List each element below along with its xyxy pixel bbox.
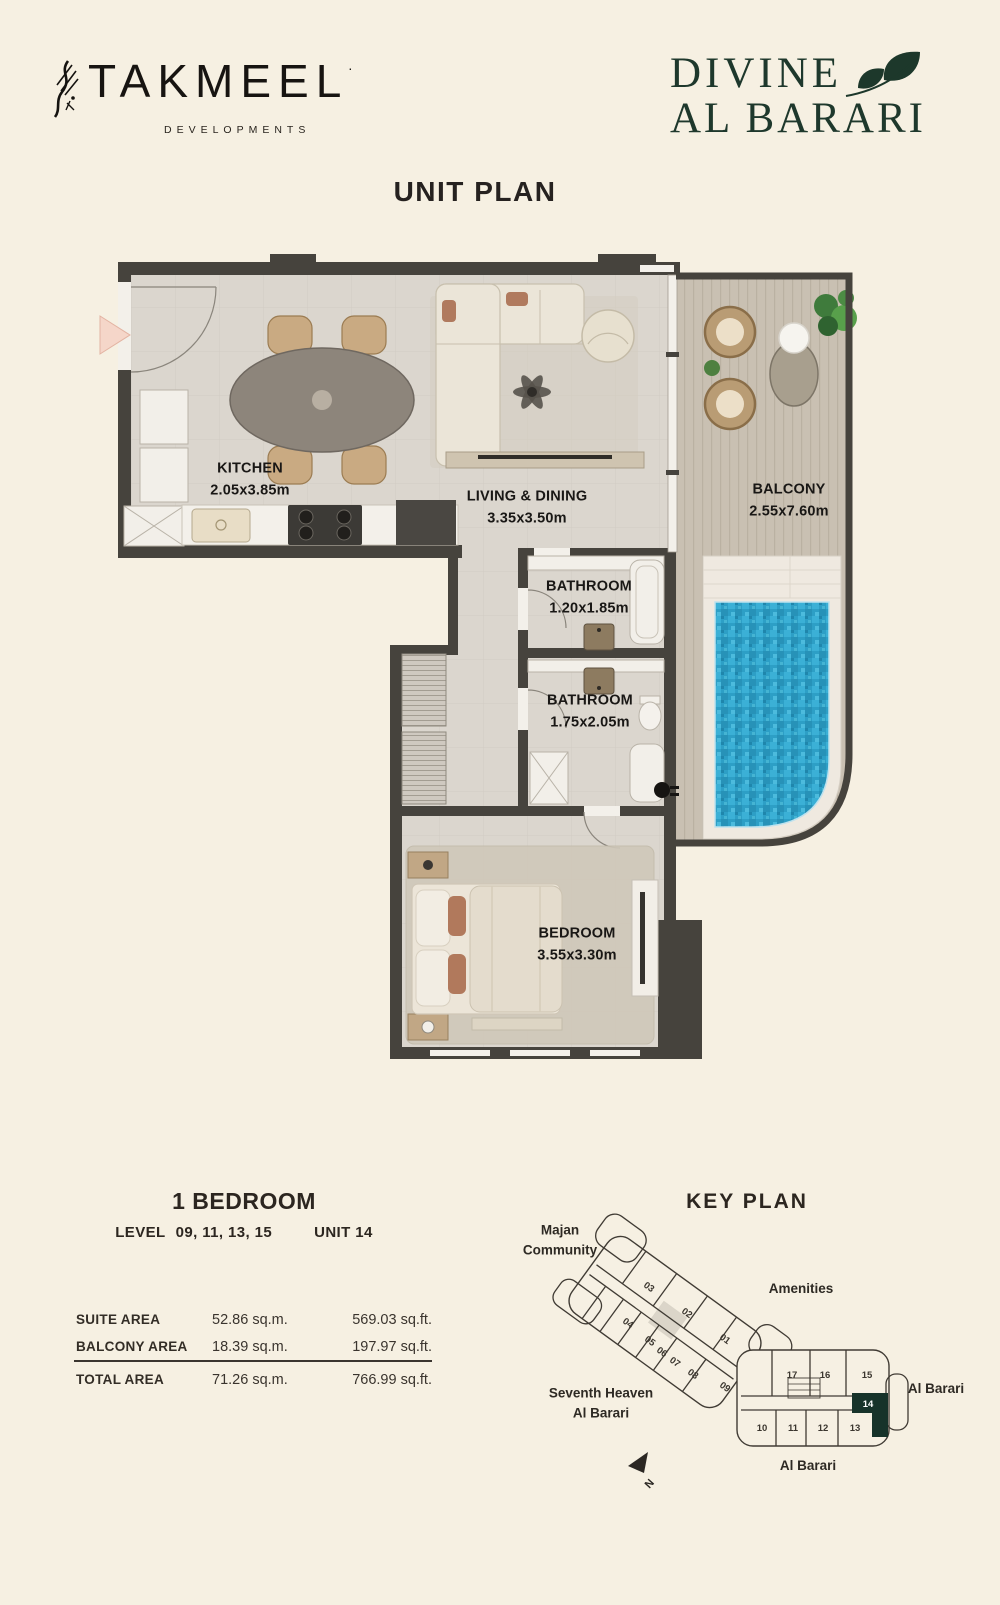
small-plant: [704, 360, 720, 376]
svg-text:17: 17: [787, 1370, 798, 1381]
pillow: [416, 890, 450, 946]
area-sqm: 18.39 sq.m.: [212, 1339, 330, 1355]
pillow: [416, 950, 450, 1006]
room-label-balcony: BALCONY 2.55x7.60m: [749, 479, 828, 523]
key-plan-graphics: N 03 02 01 04 05 06 07 08 09 17 16 15 10…: [547, 1209, 908, 1491]
room-label-living-dining: LIVING & DINING 3.35x3.50m: [467, 486, 588, 530]
area-sqm: 71.26 sq.m.: [212, 1372, 330, 1388]
wardrobe: [402, 732, 446, 804]
room-label-bedroom: BEDROOM 3.55x3.30m: [537, 923, 616, 967]
page-title: UNIT PLAN: [394, 176, 557, 208]
hall-floor: [452, 552, 526, 656]
svg-text:10: 10: [757, 1423, 768, 1434]
key-plan-title: KEY PLAN: [686, 1190, 808, 1214]
floor-plan-graphics: N 03 02 01 04 05 06 07 08 09 17 16 15 10…: [0, 0, 1000, 1605]
bedroom-furniture: [406, 846, 658, 1044]
bedroom-tv: [640, 892, 645, 984]
room-name: BATHROOM: [547, 690, 633, 712]
accent-pillow: [442, 300, 456, 322]
north-label: N: [643, 1477, 657, 1491]
kitchen-cabinet: [140, 448, 188, 502]
room-dims: 2.55x7.60m: [749, 501, 828, 523]
unit-plan-page: N 03 02 01 04 05 06 07 08 09 17 16 15 10…: [0, 0, 1000, 1605]
room-dims: 2.05x3.85m: [210, 480, 289, 502]
takmeel-wordmark: TAKMEEL.: [88, 58, 359, 104]
svg-text:15: 15: [862, 1370, 873, 1381]
area-separator-line: [74, 1360, 432, 1362]
key-plan-label-majan: Majan Community: [523, 1220, 597, 1259]
kitchen-cabinet: [140, 390, 188, 444]
svg-text:16: 16: [820, 1370, 831, 1381]
key-plan-label-amenities: Amenities: [769, 1279, 834, 1299]
tall-kitchen-unit: [396, 500, 456, 545]
area-row-total: TOTAL AREA 71.26 sq.m. 766.99 sq.ft.: [76, 1372, 432, 1388]
unit-type-title: 1 BEDROOM: [70, 1188, 418, 1215]
svg-text:13: 13: [850, 1423, 861, 1434]
takmeel-calligraphy-icon: [46, 58, 82, 120]
accent-pillow: [448, 954, 466, 994]
area-sqm: 52.86 sq.m.: [212, 1312, 330, 1328]
armchair: [582, 310, 634, 362]
wardrobe: [402, 654, 446, 726]
area-sqft: 197.97 sq.ft.: [330, 1339, 432, 1355]
svg-text:11: 11: [788, 1423, 799, 1434]
kitchen-sink: [192, 509, 250, 542]
area-label: TOTAL AREA: [76, 1372, 212, 1387]
room-name: LIVING & DINING: [467, 486, 588, 508]
dining-chair: [342, 316, 386, 354]
room-dims: 3.55x3.30m: [537, 945, 616, 967]
area-sqft: 766.99 sq.ft.: [330, 1372, 432, 1388]
structural-column: [658, 920, 702, 1059]
key-plan-label-al-barari-right: Al Barari: [908, 1379, 964, 1399]
room-dims: 1.75x2.05m: [547, 712, 633, 734]
highlighted-unit-number: 14: [863, 1399, 874, 1410]
svg-text:12: 12: [818, 1423, 829, 1434]
area-row-balcony: BALCONY AREA 18.39 sq.m. 197.97 sq.ft.: [76, 1339, 432, 1355]
bathtub: [630, 560, 664, 644]
pool: [703, 556, 841, 839]
entry-door-opening: [118, 282, 131, 370]
room-dims: 3.35x3.50m: [467, 508, 588, 530]
takmeel-logo: TAKMEEL.: [46, 58, 359, 120]
balcony-glass-wall: [668, 275, 677, 552]
leaf-icon: [838, 44, 924, 104]
area-label: BALCONY AREA: [76, 1339, 212, 1354]
key-plan-label-seventh-heaven: Seventh Heaven Al Barari: [549, 1383, 653, 1422]
tv: [478, 455, 612, 459]
bed-bench: [472, 1018, 562, 1030]
room-name: BALCONY: [749, 479, 828, 501]
room-dims: 1.20x1.85m: [546, 598, 632, 620]
room-name: KITCHEN: [210, 458, 289, 480]
room-name: BEDROOM: [537, 923, 616, 945]
level-label: LEVEL: [115, 1224, 165, 1241]
room-name: BATHROOM: [546, 576, 632, 598]
dining-chair: [342, 446, 386, 484]
unit-number: UNIT 14: [314, 1224, 373, 1241]
pool-water: [715, 602, 829, 827]
stove: [288, 505, 362, 545]
pool-pump: [654, 782, 670, 798]
accent-pillow: [448, 896, 466, 936]
area-sqft: 569.03 sq.ft.: [330, 1312, 432, 1328]
north-arrow: N: [628, 1452, 657, 1491]
room-label-bathroom-2: BATHROOM 1.75x2.05m: [547, 690, 633, 734]
room-label-kitchen: KITCHEN 2.05x3.85m: [210, 458, 289, 502]
room-label-bathroom-1: BATHROOM 1.20x1.85m: [546, 576, 632, 620]
sink: [584, 624, 614, 650]
level-unit-row: LEVEL 09, 11, 13, 15 UNIT 14: [70, 1224, 418, 1241]
key-plan-label-al-barari-bottom: Al Barari: [780, 1456, 836, 1476]
toilet: [639, 702, 661, 730]
level-values: 09, 11, 13, 15: [176, 1224, 273, 1241]
accent-pillow: [506, 292, 528, 306]
area-row-suite: SUITE AREA 52.86 sq.m. 569.03 sq.ft.: [76, 1312, 432, 1328]
takmeel-subtitle: DEVELOPMENTS: [164, 124, 310, 136]
tv-console: [446, 452, 644, 468]
living-furniture: [430, 284, 644, 468]
area-label: SUITE AREA: [76, 1312, 212, 1327]
